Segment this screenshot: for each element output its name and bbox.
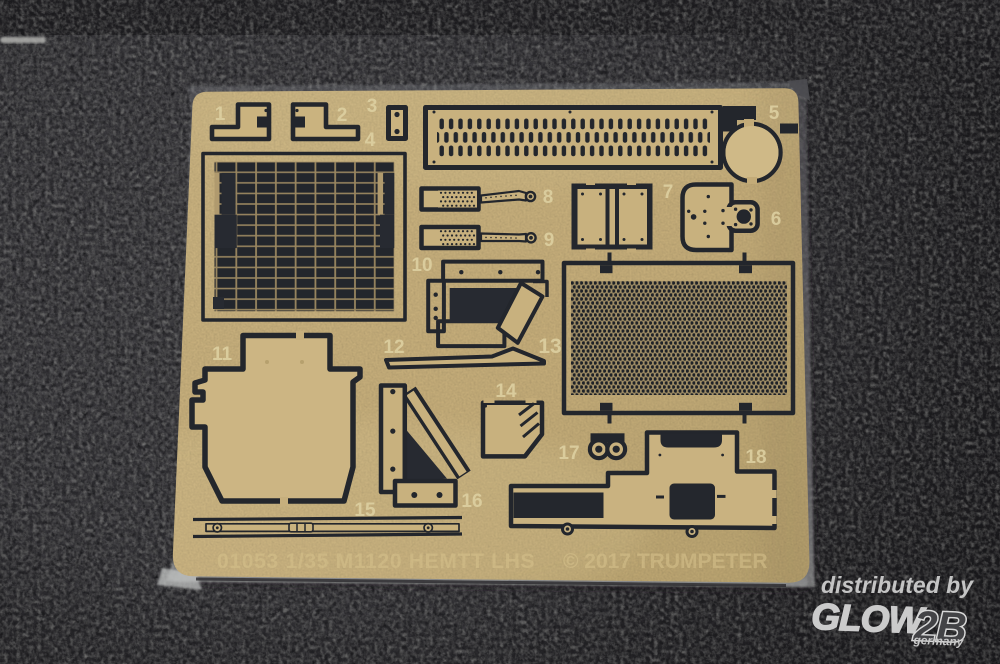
svg-text:12: 12 bbox=[383, 337, 404, 358]
svg-text:18: 18 bbox=[745, 447, 766, 468]
svg-text:13: 13 bbox=[538, 335, 561, 358]
svg-text:distributed by: distributed by bbox=[821, 572, 974, 598]
svg-text:germany: germany bbox=[912, 633, 965, 649]
svg-text:11: 11 bbox=[212, 344, 233, 365]
svg-text:2: 2 bbox=[337, 105, 348, 126]
svg-text:GLOW: GLOW bbox=[811, 596, 928, 641]
svg-text:6: 6 bbox=[771, 209, 782, 230]
svg-text:15: 15 bbox=[354, 500, 376, 521]
svg-text:8: 8 bbox=[543, 187, 554, 208]
svg-text:10: 10 bbox=[411, 255, 432, 276]
svg-text:4: 4 bbox=[365, 130, 376, 151]
svg-text:7: 7 bbox=[663, 182, 674, 203]
svg-text:16: 16 bbox=[461, 491, 482, 512]
svg-text:3: 3 bbox=[367, 96, 378, 117]
svg-text:17: 17 bbox=[558, 443, 579, 464]
svg-text:14: 14 bbox=[495, 381, 517, 402]
svg-text:01053 1/35 M1120 HEMTT LHS: 01053 1/35 M1120 HEMTT LHS bbox=[217, 550, 536, 573]
svg-text:9: 9 bbox=[544, 230, 555, 251]
svg-text:5: 5 bbox=[769, 103, 780, 124]
svg-text:© 2017 TRUMPETER: © 2017 TRUMPETER bbox=[563, 550, 769, 573]
svg-text:1: 1 bbox=[215, 104, 226, 125]
